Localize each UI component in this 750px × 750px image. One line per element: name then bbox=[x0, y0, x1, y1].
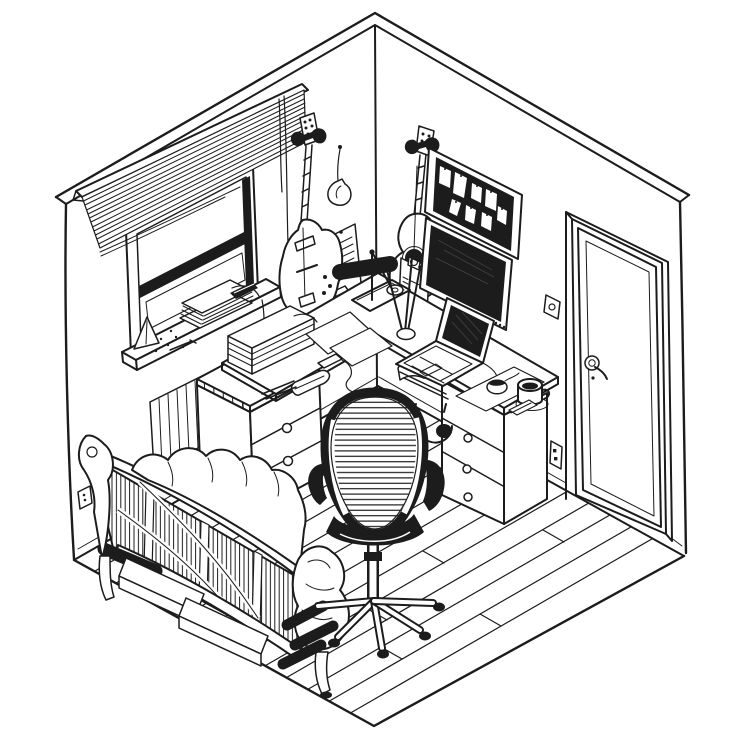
lamp-head bbox=[340, 264, 390, 272]
isometric-room-illustration: Isometric pen-and-ink illustration of a … bbox=[0, 0, 750, 750]
illustration-canvas: Isometric pen-and-ink illustration of a … bbox=[0, 0, 750, 750]
right-wall-outlet bbox=[550, 441, 562, 469]
